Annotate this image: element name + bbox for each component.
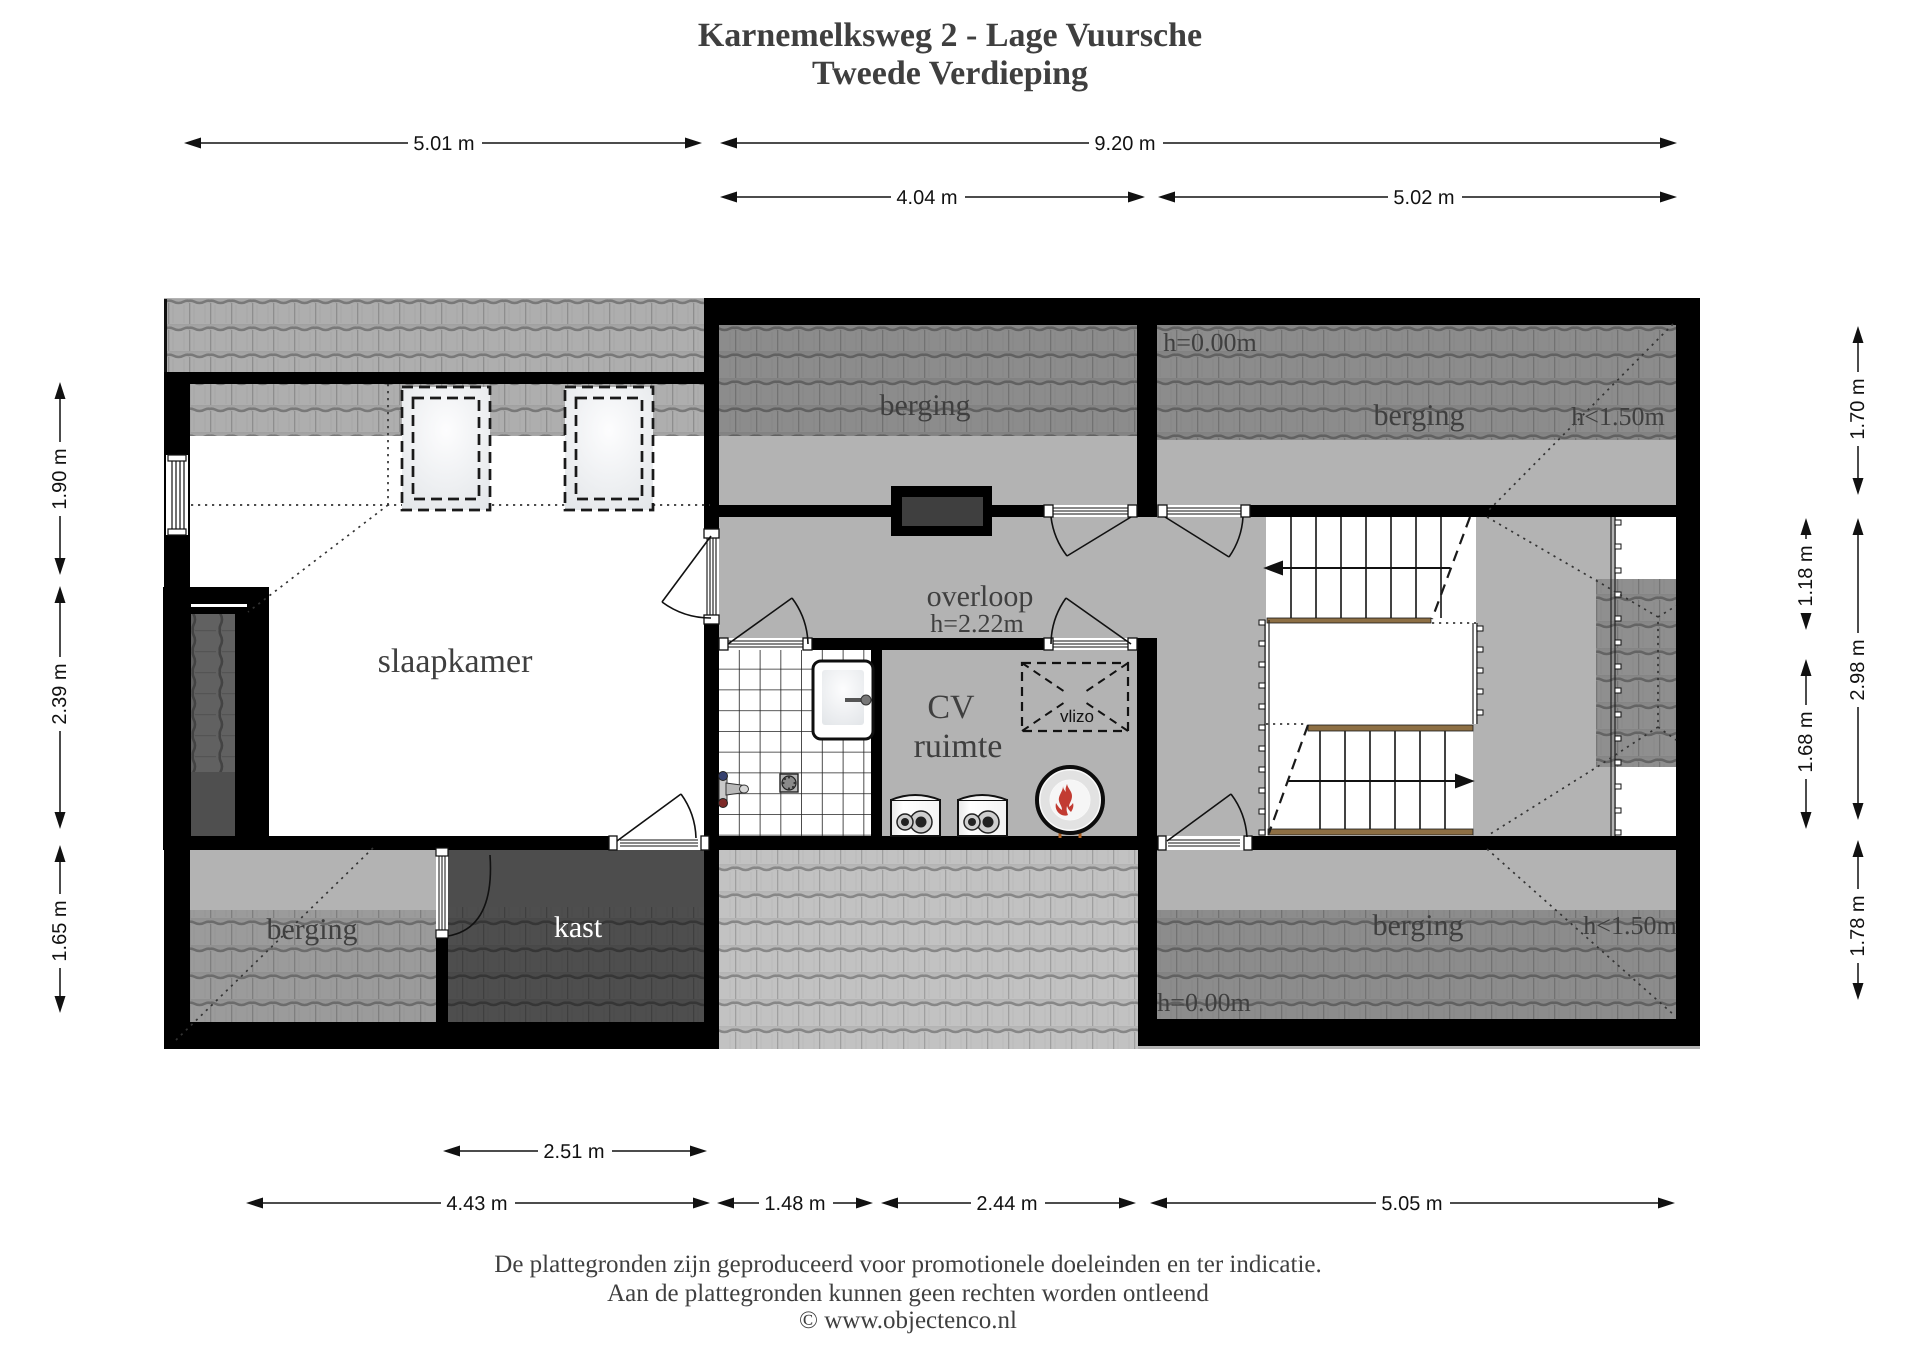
svg-text:1.70 m: 1.70 m [1847,378,1869,439]
svg-text:1.90 m: 1.90 m [49,448,71,509]
svg-text:9.20 m: 9.20 m [1094,133,1155,155]
svg-text:CV: CV [927,689,975,726]
svg-text:2.44 m: 2.44 m [976,1193,1037,1215]
svg-text:h=0.00m: h=0.00m [1163,328,1256,357]
svg-text:h<1.50m: h<1.50m [1583,911,1676,940]
svg-text:5.05 m: 5.05 m [1381,1193,1442,1215]
svg-text:1.68 m: 1.68 m [1795,711,1817,772]
svg-text:4.43 m: 4.43 m [446,1193,507,1215]
svg-text:1.78 m: 1.78 m [1847,895,1869,956]
svg-text:h=2.22m: h=2.22m [930,609,1023,638]
svg-text:5.01 m: 5.01 m [413,133,474,155]
svg-text:berging: berging [266,913,357,946]
svg-text:Karnemelksweg 2 - Lage Vuursch: Karnemelksweg 2 - Lage Vuursche [698,17,1202,54]
svg-text:berging: berging [1372,909,1463,942]
svg-text:1.18 m: 1.18 m [1795,545,1817,606]
svg-text:1.65 m: 1.65 m [49,900,71,961]
svg-text:h<1.50m: h<1.50m [1571,402,1664,431]
svg-text:berging: berging [1373,399,1464,432]
svg-text:vlizo: vlizo [1060,707,1094,726]
svg-text:2.51 m: 2.51 m [543,1141,604,1163]
svg-text:kast: kast [554,911,603,944]
svg-text:De plattegronden zijn geproduc: De plattegronden zijn geproduceerd voor … [494,1251,1321,1278]
svg-text:5.02 m: 5.02 m [1393,187,1454,209]
svg-text:4.04 m: 4.04 m [896,187,957,209]
svg-text:Tweede Verdieping: Tweede Verdieping [812,55,1088,92]
svg-text:h=0.00m: h=0.00m [1157,988,1250,1017]
svg-text:© www.objectenco.nl: © www.objectenco.nl [799,1307,1017,1334]
svg-text:ruimte: ruimte [914,728,1003,765]
svg-text:Aan de plattegronden kunnen ge: Aan de plattegronden kunnen geen rechten… [607,1280,1209,1307]
svg-text:2.39 m: 2.39 m [49,663,71,724]
svg-text:berging: berging [879,389,970,422]
svg-text:1.48 m: 1.48 m [764,1193,825,1215]
svg-text:slaapkamer: slaapkamer [378,643,533,680]
svg-text:2.98 m: 2.98 m [1847,639,1869,700]
